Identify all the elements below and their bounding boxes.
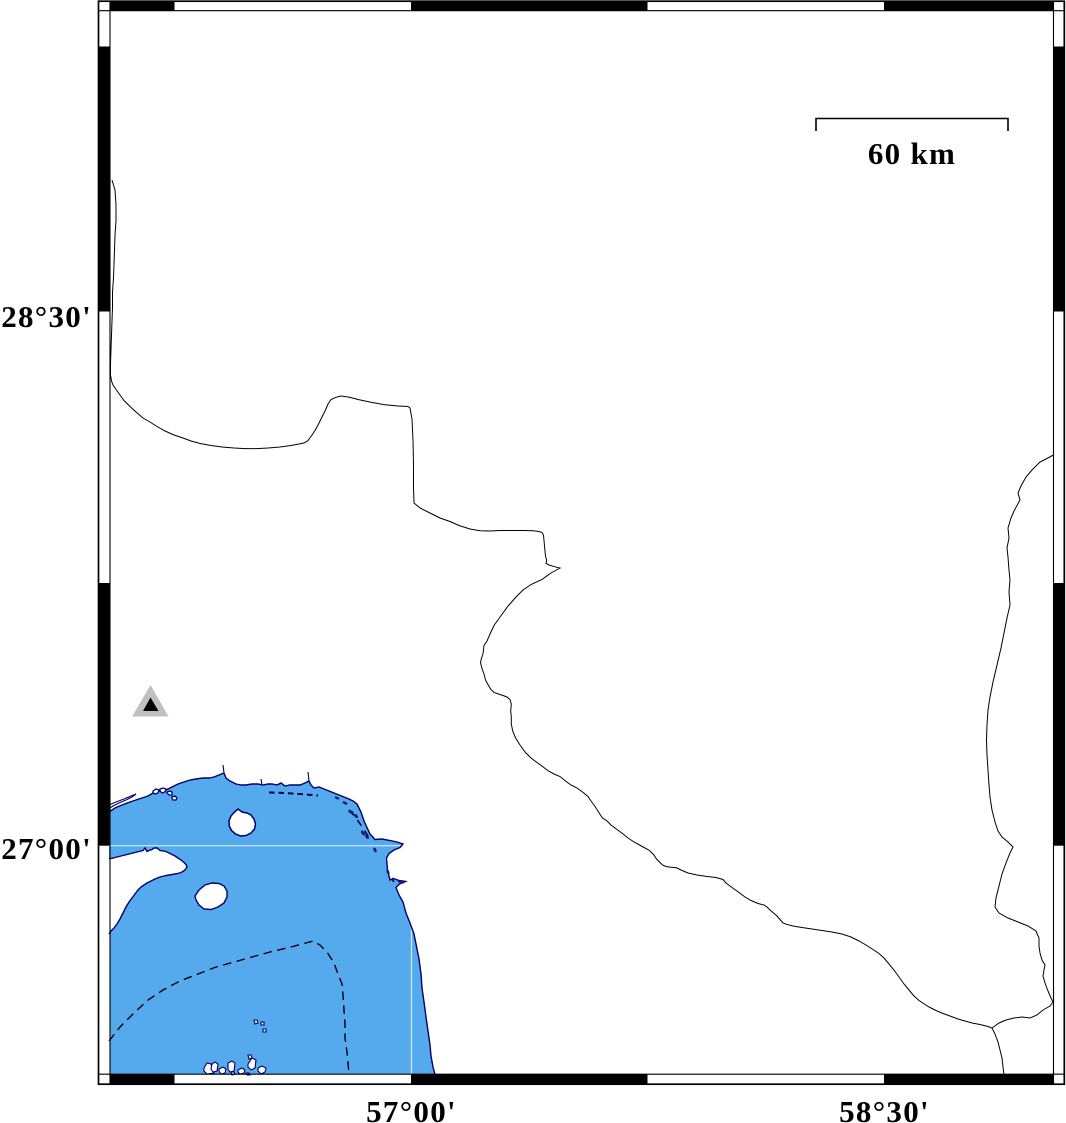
svg-text:27°00': 27°00' (1, 831, 92, 866)
svg-text:60 km: 60 km (868, 136, 956, 171)
svg-text:58°30': 58°30' (839, 1094, 930, 1123)
svg-text:28°30': 28°30' (1, 299, 92, 334)
svg-text:57°00': 57°00' (366, 1094, 457, 1123)
